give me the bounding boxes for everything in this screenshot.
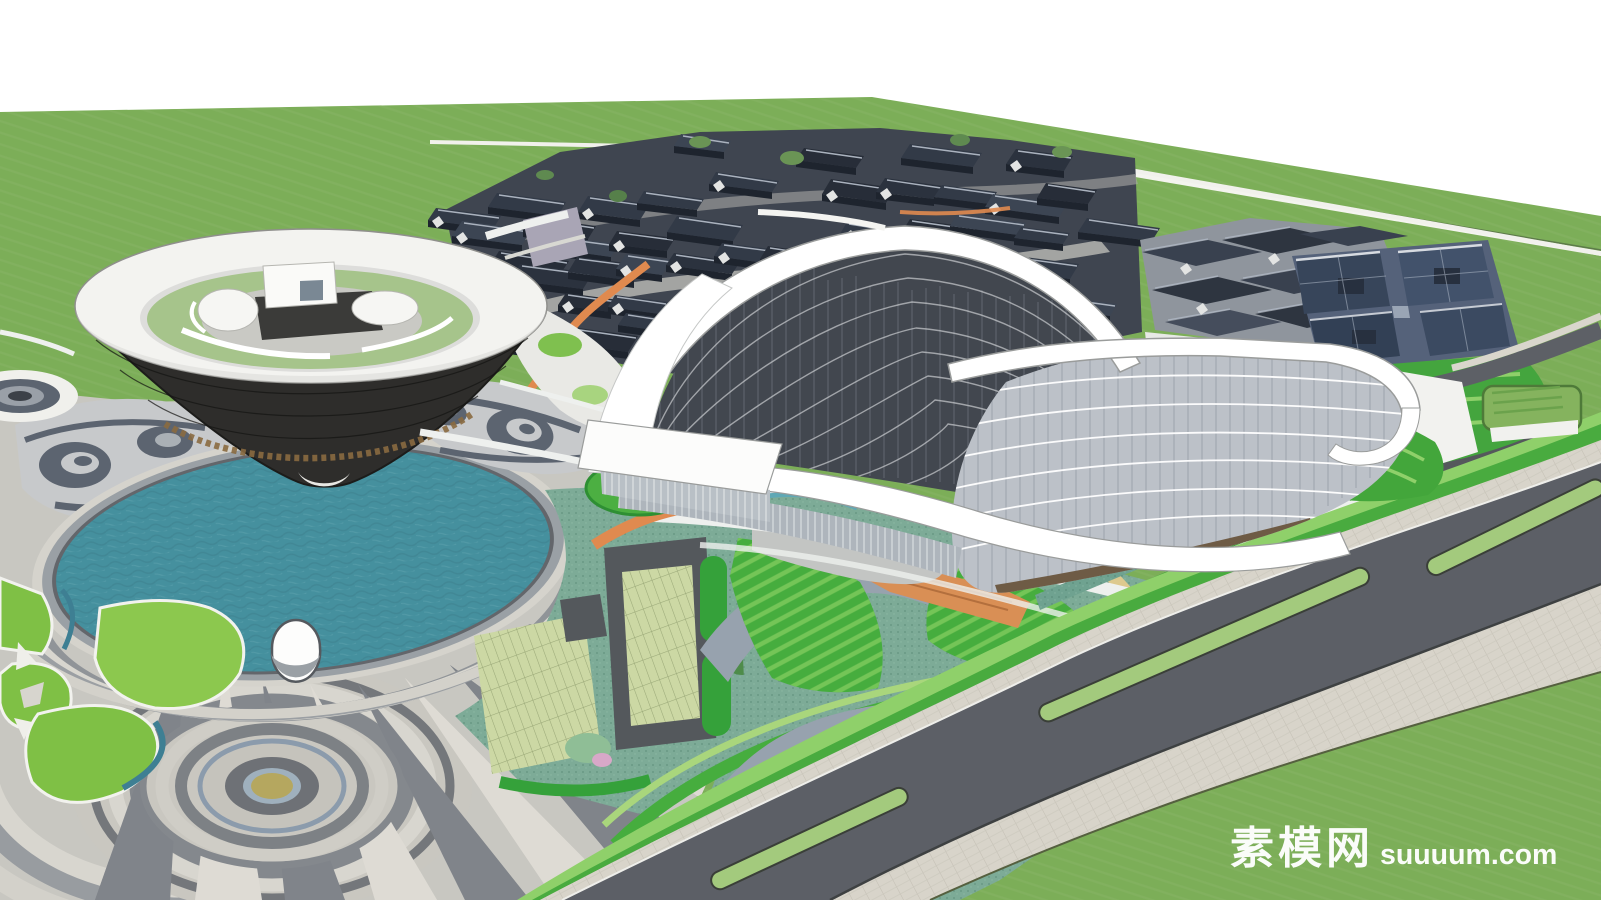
svg-text:素模网: 素模网 [1230, 824, 1374, 873]
svg-text:suuuum.com: suuuum.com [1380, 839, 1557, 871]
